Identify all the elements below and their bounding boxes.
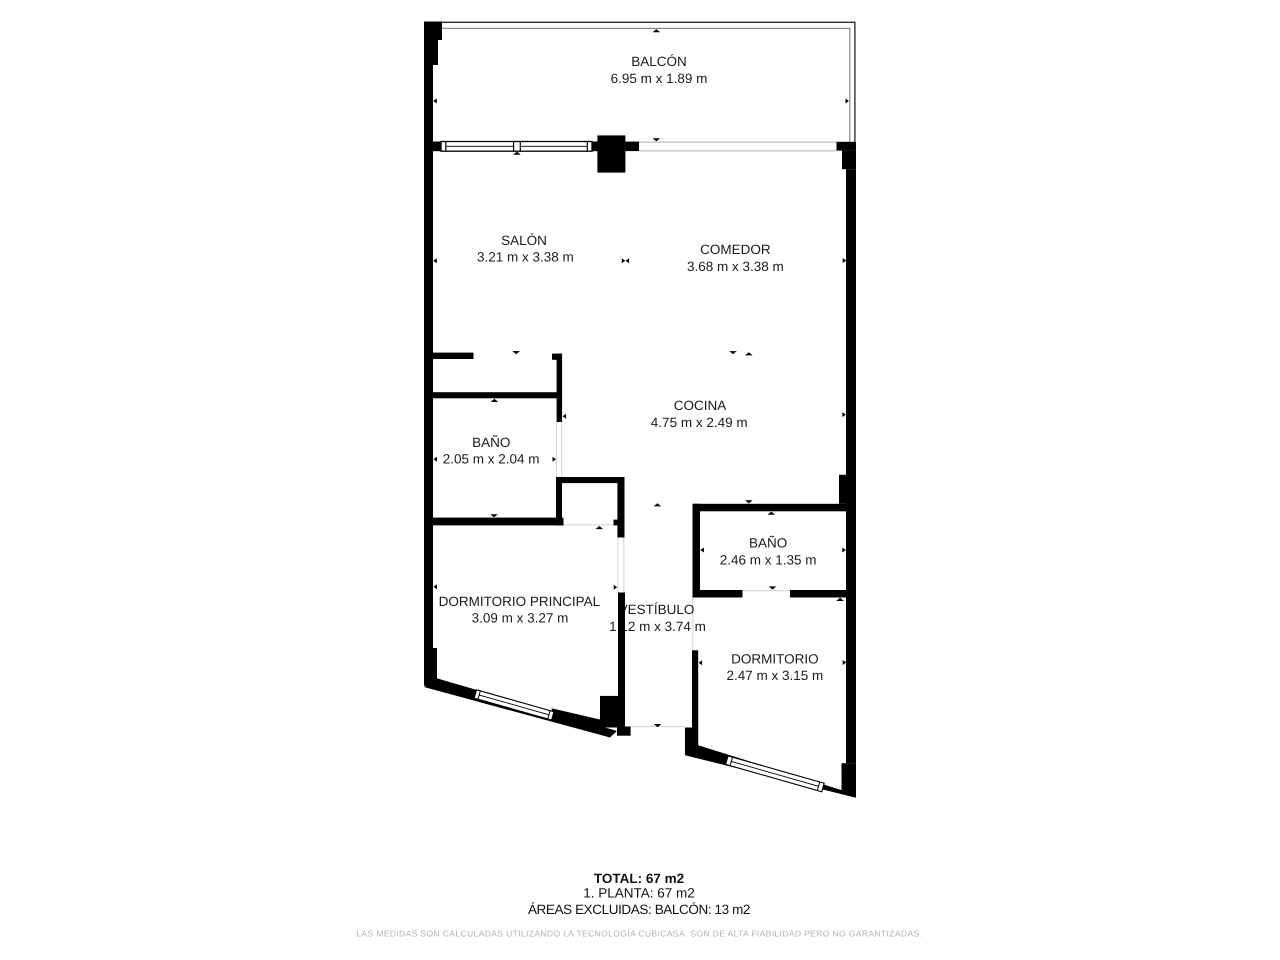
svg-text:COCINA: COCINA <box>674 398 727 413</box>
svg-text:LAS MEDIDAS SON CALCULADAS UTI: LAS MEDIDAS SON CALCULADAS UTILIZANDO LA… <box>356 929 922 939</box>
svg-text:2.47 m x 3.15 m: 2.47 m x 3.15 m <box>727 668 824 683</box>
svg-text:3.68 m x 3.38 m: 3.68 m x 3.38 m <box>687 259 784 274</box>
svg-text:3.09 m x 3.27 m: 3.09 m x 3.27 m <box>472 611 569 626</box>
svg-text:BALCÓN: BALCÓN <box>631 54 687 69</box>
svg-text:BAÑO: BAÑO <box>472 435 510 450</box>
svg-text:3.21 m x 3.38 m: 3.21 m x 3.38 m <box>477 250 574 265</box>
svg-text:COMEDOR: COMEDOR <box>700 242 771 257</box>
svg-text:TOTAL: 67 m2: TOTAL: 67 m2 <box>594 871 684 886</box>
svg-text:2.05 m x 2.04 m: 2.05 m x 2.04 m <box>443 452 540 467</box>
svg-text:DORMITORIO PRINCIPAL: DORMITORIO PRINCIPAL <box>439 594 601 609</box>
svg-text:VESTÍBULO: VESTÍBULO <box>619 602 695 617</box>
svg-text:BAÑO: BAÑO <box>749 536 787 551</box>
svg-text:ÁREAS EXCLUIDAS: BALCÓN: 13 m2: ÁREAS EXCLUIDAS: BALCÓN: 13 m2 <box>528 902 750 917</box>
svg-text:4.75 m x 2.49 m: 4.75 m x 2.49 m <box>651 415 748 430</box>
svg-text:2.46 m x 1.35 m: 2.46 m x 1.35 m <box>720 553 817 568</box>
svg-text:DORMITORIO: DORMITORIO <box>731 652 819 667</box>
svg-text:1. PLANTA: 67 m2: 1. PLANTA: 67 m2 <box>583 886 695 901</box>
svg-text:6.95 m x 1.89 m: 6.95 m x 1.89 m <box>611 71 708 86</box>
svg-text:SALÓN: SALÓN <box>501 233 547 248</box>
